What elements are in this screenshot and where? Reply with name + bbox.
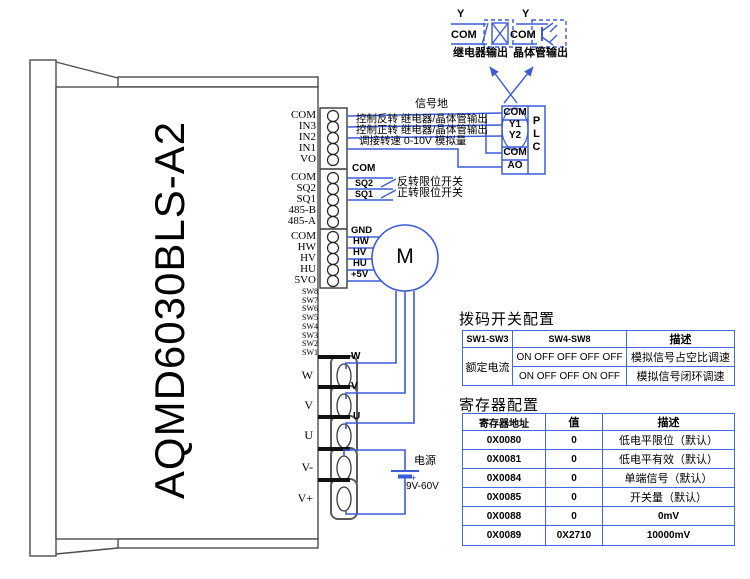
reg-val-0084: 0 <box>546 469 603 488</box>
dip-table-title: 拨码开关配置 <box>459 308 555 329</box>
terminal-v-label: V <box>304 399 313 412</box>
plc-ao-label: AO <box>502 161 528 172</box>
signal-ground-label: 信号地 <box>415 99 448 111</box>
dip-table: SW1-SW3 SW4-SW8 描述 额定电流 ON OFF OFF OFF O… <box>462 330 735 386</box>
dip-header-sw48: SW4-SW8 <box>513 331 627 348</box>
reg-addr-0089: 0X0089 <box>463 526 546 546</box>
dip-label-sw1: SW1 <box>302 349 318 357</box>
power-range-label: 9V-60V <box>406 482 439 493</box>
plc-y2-label: Y2 <box>502 131 528 142</box>
dip-cell-sw-row1: ON OFF OFF OFF OFF <box>513 348 627 367</box>
plc-com-top-label: COM <box>502 108 528 119</box>
terminal-u-label: U <box>304 429 313 442</box>
transistor-y-label: Y <box>522 9 529 21</box>
hall-hv-label: HV <box>353 248 366 258</box>
relay-y-label: Y <box>457 9 464 21</box>
plc-y1-label: Y1 <box>502 120 528 131</box>
reg-table-title: 寄存器配置 <box>459 394 539 415</box>
dip-cell-rated-current: 额定电流 <box>463 348 513 386</box>
motor-label: M <box>389 246 421 268</box>
reg-header-addr: 寄存器地址 <box>463 414 546 431</box>
power-name-label: 电源 <box>414 456 436 468</box>
reg-desc-0084: 单端信号（默认） <box>603 469 735 488</box>
dip-header-desc: 描述 <box>627 331 735 348</box>
dip-label-sw4: SW4 <box>302 323 318 331</box>
reg-addr-0084: 0X0084 <box>463 469 546 488</box>
pin-label-vo: VO <box>300 154 316 166</box>
wiring-diagram: AQMD6030BLS-A2 COM IN3 IN2 IN1 VO COM SQ… <box>0 0 750 579</box>
signal-speed-label: 调接转速 0-10V 模拟量 <box>359 136 466 147</box>
reg-val-0080: 0 <box>546 431 603 450</box>
reg-header-val: 值 <box>546 414 603 431</box>
reg-addr-0088: 0X0088 <box>463 507 546 526</box>
reg-desc-0085: 开关量（默认） <box>603 488 735 507</box>
phase-w-label: W <box>351 352 360 363</box>
transistor-com-label: COM <box>510 30 536 42</box>
reg-desc-0080: 低电平限位（默认） <box>603 431 735 450</box>
model-name: AQMD6030BLS-A2 <box>146 121 194 499</box>
pin-label-485a: 485-A <box>288 216 316 228</box>
reg-val-0085: 0 <box>546 488 603 507</box>
transistor-output-label: 晶体管输出 <box>513 48 568 60</box>
limit-forward-desc: 正转限位开关 <box>397 188 463 200</box>
hall-hu-label: HU <box>353 259 367 269</box>
dip-cell-desc-row2: 模拟信号闭环调速 <box>627 367 735 386</box>
terminal-vminus-label: V- <box>301 461 313 474</box>
reg-addr-0080: 0X0080 <box>463 431 546 450</box>
terminal-w-label: W <box>302 369 313 382</box>
output-type-arrows <box>490 67 533 103</box>
reg-desc-0089: 10000mV <box>603 526 735 546</box>
limit-com-label: COM <box>352 164 375 175</box>
phase-v-label: V <box>351 382 358 393</box>
plc-com-bottom-label: COM <box>502 148 528 159</box>
reg-val-0089: 0X2710 <box>546 526 603 546</box>
reg-val-0088: 0 <box>546 507 603 526</box>
hall-5v-label: +5V <box>351 270 368 280</box>
register-table: 寄存器地址 值 描述 0X0080 0 低电平限位（默认） 0X0081 0 低… <box>462 413 735 546</box>
plc-name-p: P <box>528 116 545 128</box>
reg-desc-0081: 低电平有效（默认） <box>603 450 735 469</box>
phase-u-label: U <box>353 412 360 423</box>
reg-addr-0081: 0X0081 <box>463 450 546 469</box>
dip-header-sw13: SW1-SW3 <box>463 331 513 348</box>
pin-circles <box>328 111 339 287</box>
limit-sq1-label: SQ1 <box>355 190 373 199</box>
plc-name-l: L <box>528 129 545 141</box>
reg-addr-0085: 0X0085 <box>463 488 546 507</box>
plc-name-c: C <box>528 142 545 154</box>
pin-label-5vo: 5VO <box>295 275 316 287</box>
relay-com-label: COM <box>451 30 477 42</box>
reg-header-desc: 描述 <box>603 414 735 431</box>
hall-hw-label: HW <box>353 237 369 247</box>
dip-cell-sw-row2: ON OFF OFF ON OFF <box>513 367 627 386</box>
dip-cell-desc-row1: 模拟信号占空比调速 <box>627 348 735 367</box>
limit-sq2-label: SQ2 <box>355 179 373 188</box>
terminal-vplus-label: V+ <box>298 492 313 505</box>
reg-val-0081: 0 <box>546 450 603 469</box>
hall-gnd-label: GND <box>351 226 372 236</box>
relay-output-label: 继电器输出 <box>453 48 508 60</box>
reg-desc-0088: 0mV <box>603 507 735 526</box>
